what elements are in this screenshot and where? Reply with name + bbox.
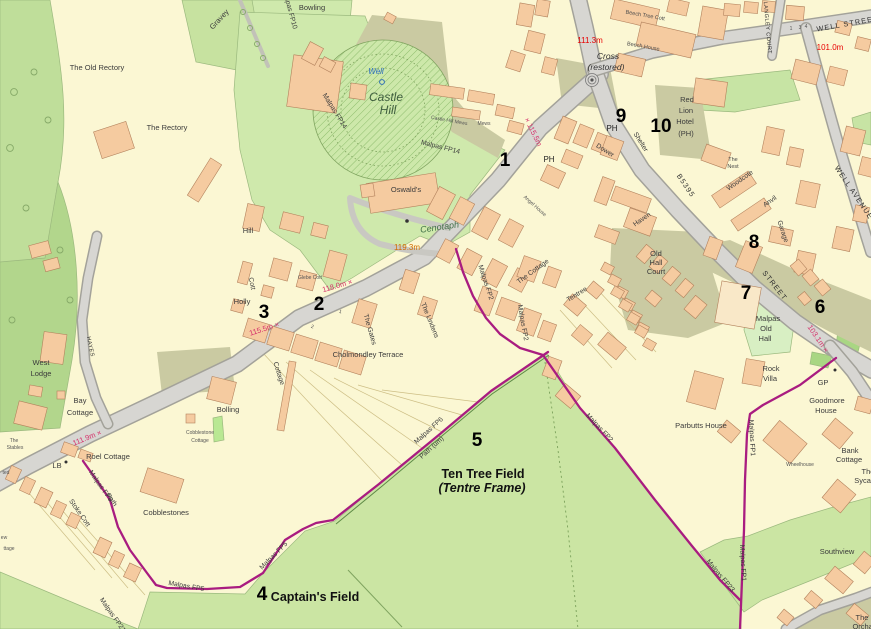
map-canvas[interactable]: The Old RectoryThe RectoryGraveyBowlingW… <box>0 0 871 629</box>
building <box>186 414 195 423</box>
map-label-stables: Stables <box>7 445 24 451</box>
map-label-malpas: Malpas <box>756 314 780 323</box>
map-label-3: 3 <box>259 302 270 323</box>
map-label-bay: Bay <box>74 396 87 405</box>
cenotaph-icon <box>405 219 409 223</box>
letter-box-icon <box>65 461 68 464</box>
map-label-cottage: Cottage <box>836 455 862 464</box>
map-label-wheelhouse: Wheelhouse <box>786 462 814 468</box>
map-viewport: The Old RectoryThe RectoryGraveyBowlingW… <box>0 0 871 629</box>
map-label-ted: ted <box>3 470 10 476</box>
map-label-hill: Hill <box>243 226 254 235</box>
map-label-cottage: Cottage <box>191 438 209 444</box>
map-label-the-old-rectory: The Old Rectory <box>70 63 125 72</box>
map-label-111-3m: 111.3m <box>577 36 603 45</box>
map-label-8: 8 <box>749 232 760 253</box>
map-label-cholmondley-terrace: Cholmondley Terrace <box>333 350 404 359</box>
map-label-ph: PH <box>606 124 617 133</box>
map-label-tentre-frame: (Tentre Frame) <box>438 481 525 495</box>
building <box>535 0 551 17</box>
map-label-cross: Cross <box>597 51 620 61</box>
map-label-the-rectory: The Rectory <box>147 123 188 132</box>
building <box>360 183 375 198</box>
map-label-holly: Holly <box>234 297 251 306</box>
map-label-hill: Hill <box>380 103 397 117</box>
map-label-4: 4 <box>805 24 808 30</box>
map-label-sycamores: Sycamores <box>854 476 871 485</box>
map-label-the: The <box>728 157 737 163</box>
map-label-lodge: Lodge <box>31 369 52 378</box>
map-label-ph: (PH) <box>678 129 694 138</box>
map-label-cobblestones: Cobblestones <box>143 508 189 517</box>
map-label-old: Old <box>760 324 772 333</box>
green-patch-bolling <box>213 416 224 442</box>
map-label-1: 1 <box>500 150 511 171</box>
map-label-7: 7 <box>741 283 752 304</box>
guide-post-icon <box>834 369 837 372</box>
map-label-bank: Bank <box>841 446 858 455</box>
building <box>724 3 741 16</box>
map-label-2: 2 <box>314 294 325 315</box>
map-label-101-0m: 101.0m <box>817 43 844 52</box>
map-label-parbutts-house: Parbutts House <box>675 421 727 430</box>
map-label-119-3m: 119.3m <box>394 243 420 252</box>
map-label-the: The <box>862 467 871 476</box>
map-label-10: 10 <box>650 116 671 137</box>
map-label-bolling: Bolling <box>217 405 240 414</box>
map-label-nest: Nest <box>727 164 739 170</box>
map-label-restored: (restored) <box>588 62 625 72</box>
building <box>715 281 762 329</box>
map-label-captain-s-field: Captain's Field <box>271 590 359 604</box>
map-label-the: The <box>10 438 19 444</box>
map-label-1: 1 <box>790 26 793 32</box>
map-label-orchard: Orchard <box>852 622 871 629</box>
cross-monument-center <box>590 78 593 81</box>
map-label-well: Well <box>368 67 384 76</box>
map-label-red: Red <box>680 95 694 104</box>
map-label-lion: Lion <box>679 106 693 115</box>
well-icon <box>380 80 385 85</box>
map-label-hall: Hall <box>650 258 663 267</box>
map-label-villa: Villa <box>763 374 778 383</box>
map-label-house: House <box>815 406 837 415</box>
map-label-lb: LB <box>52 461 61 470</box>
map-label-5: 5 <box>472 430 483 451</box>
map-label-castle: Castle <box>369 90 403 104</box>
map-label-west: West <box>33 358 51 367</box>
map-label-hall: Hall <box>759 334 772 343</box>
map-label-oswald-s: Oswald's <box>391 185 421 194</box>
map-label-hotel: Hotel <box>676 117 694 126</box>
building <box>57 391 65 399</box>
map-label-the: The <box>856 613 869 622</box>
building <box>349 83 367 100</box>
building <box>261 285 274 298</box>
map-label-old: Old <box>650 249 662 258</box>
map-label-glebe-cott: Glebe Cott <box>298 275 323 281</box>
map-label-4: 4 <box>257 584 268 605</box>
building <box>744 1 759 13</box>
map-label-ph: PH <box>543 155 554 164</box>
map-label-court: Court <box>647 267 666 276</box>
map-label-cobblestone: Cobblestone <box>186 430 214 436</box>
map-label-3: 3 <box>799 25 802 31</box>
map-label-mews: Mews <box>477 121 491 127</box>
building <box>692 78 727 107</box>
map-label-ten-tree-field: Ten Tree Field <box>441 467 524 481</box>
map-label-goodmore: Goodmore <box>809 396 844 405</box>
map-label-rock: Rock <box>762 364 779 373</box>
map-label-cottage: Cottage <box>67 408 93 417</box>
map-label-ew: ew <box>1 535 8 541</box>
map-label-ttage: ttage <box>3 546 14 552</box>
map-label-bowling: Bowling <box>299 3 325 12</box>
map-label-gp: GP <box>818 378 829 387</box>
map-label-roel-cottage: Roel Cottage <box>86 452 130 461</box>
map-label-6: 6 <box>815 297 826 318</box>
building <box>28 385 43 397</box>
map-label-southview: Southview <box>820 547 855 556</box>
building <box>785 5 804 21</box>
